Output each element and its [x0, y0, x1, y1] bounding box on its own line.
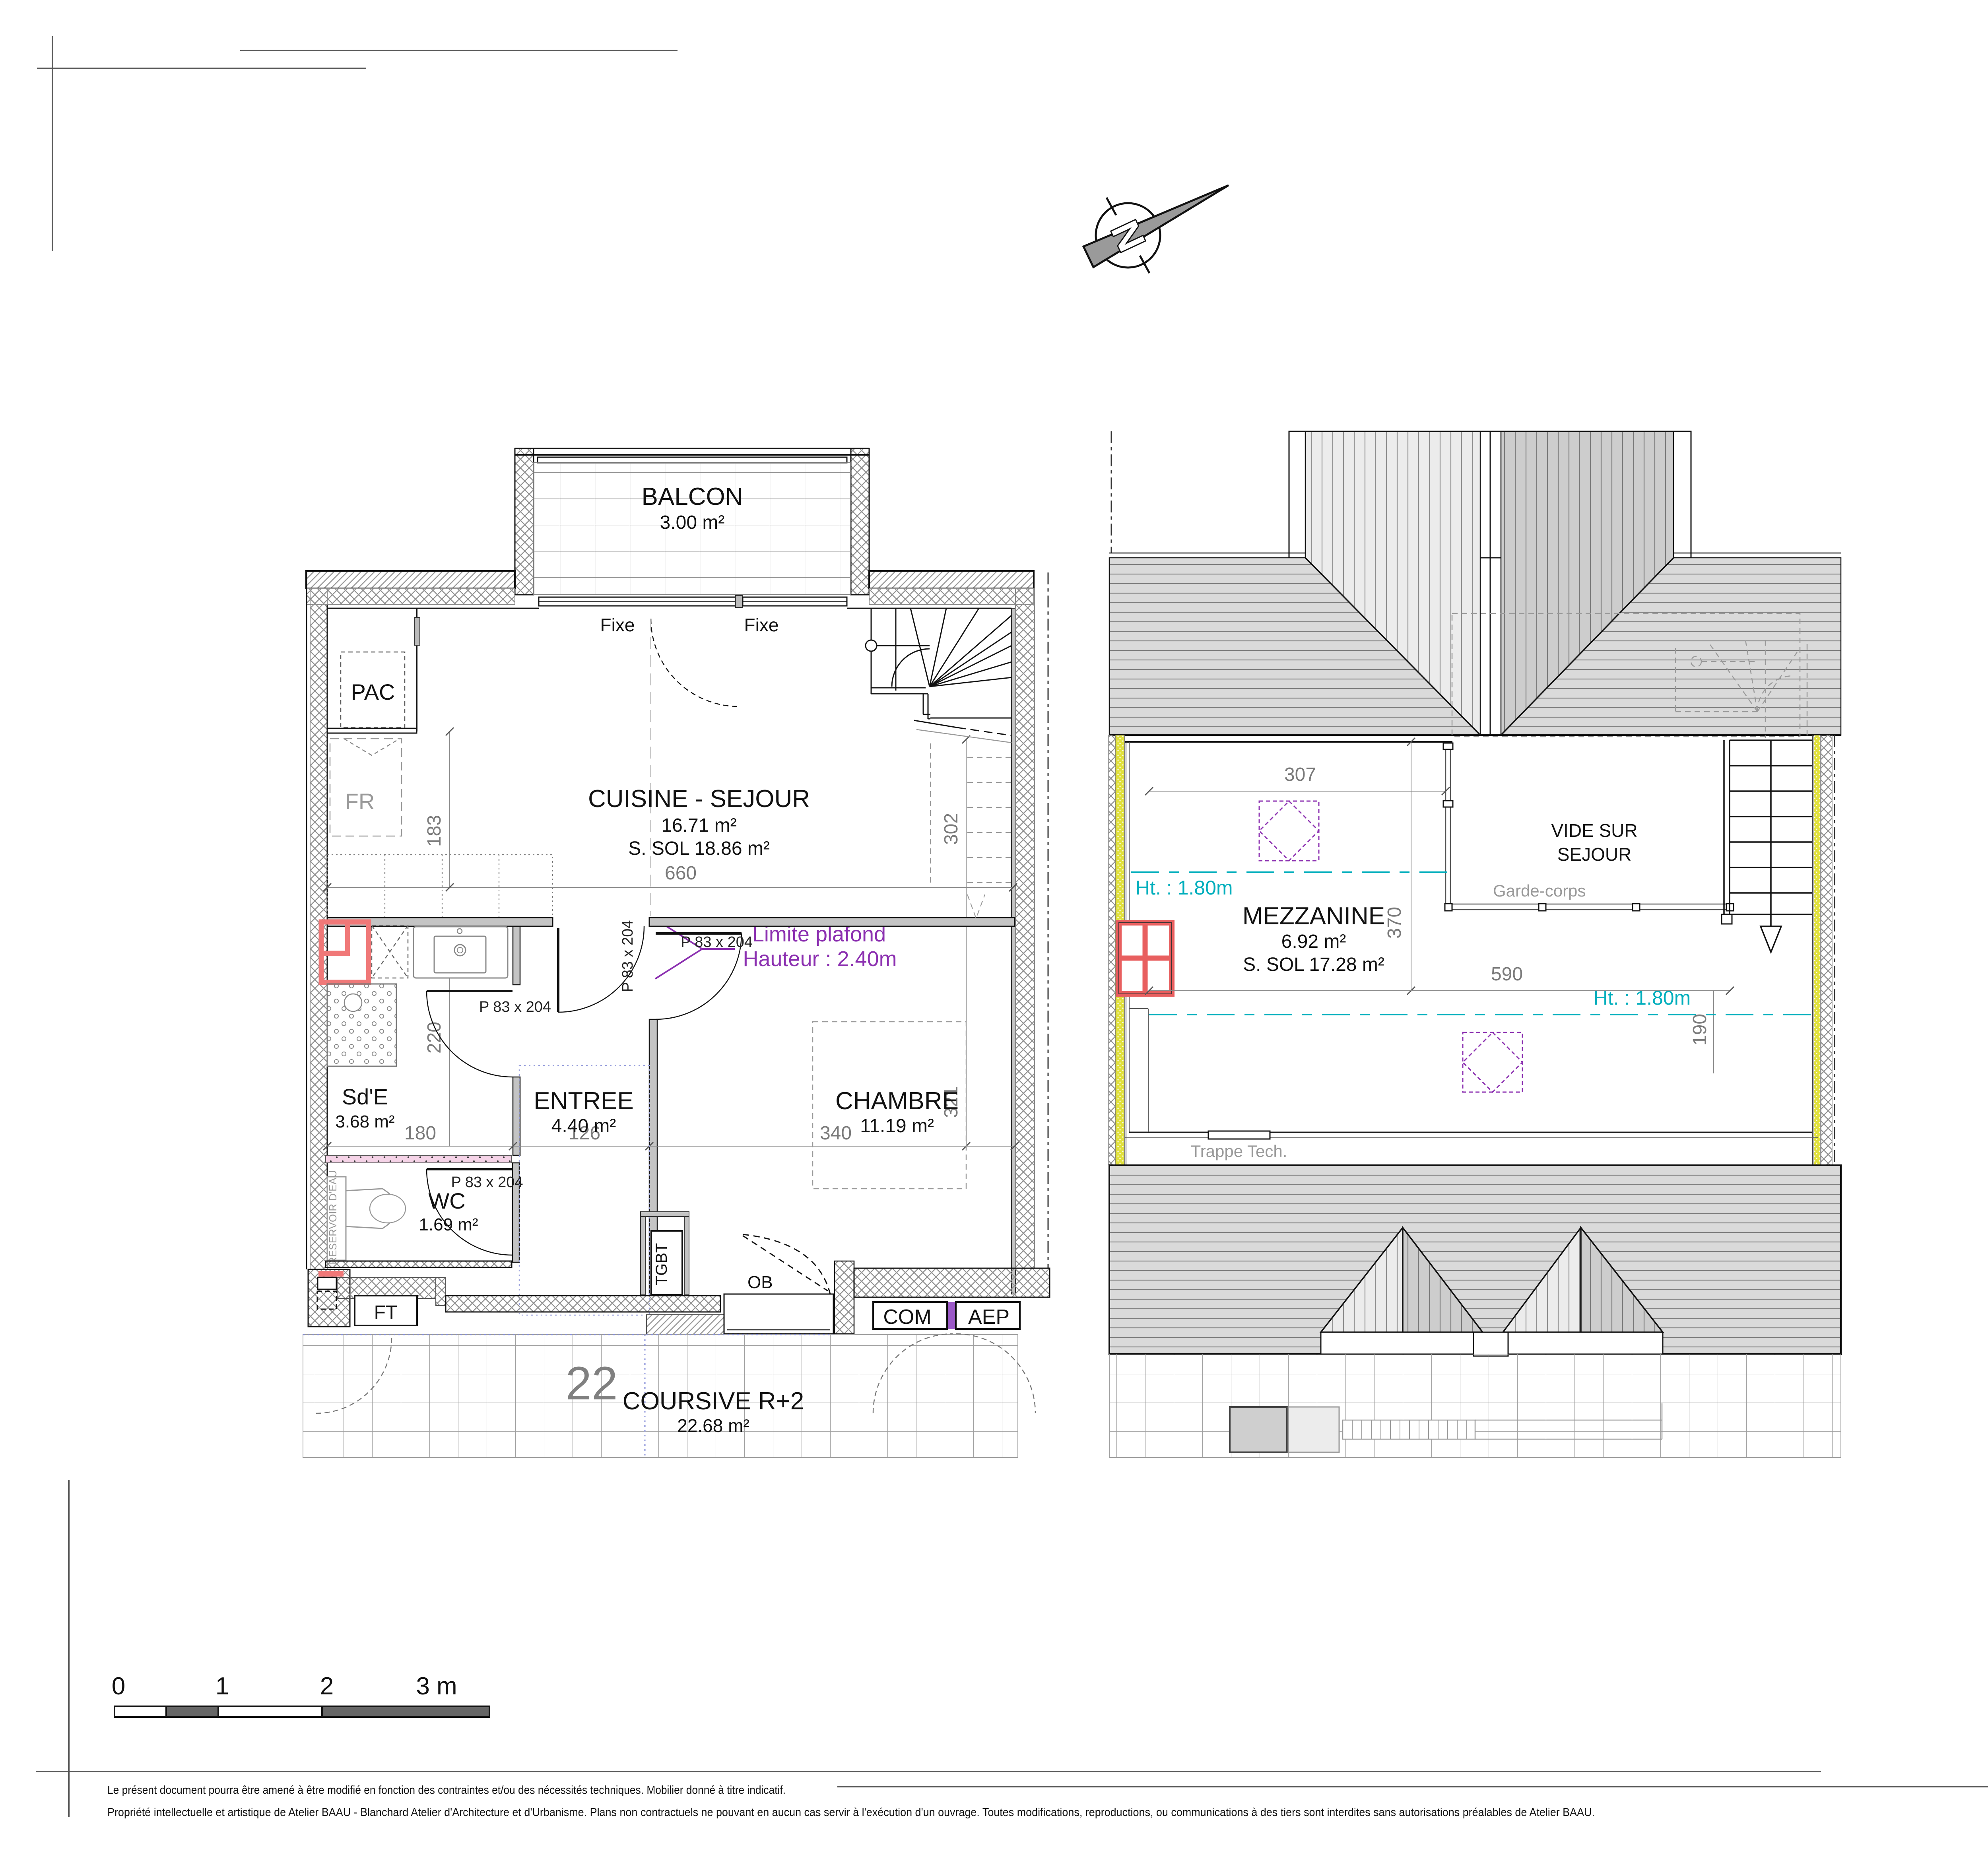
svg-text:FT: FT — [374, 1302, 398, 1323]
svg-text:ENTREE: ENTREE — [534, 1087, 633, 1115]
svg-text:WC: WC — [428, 1188, 465, 1213]
svg-text:22: 22 — [565, 1357, 617, 1410]
svg-text:6.92 m²: 6.92 m² — [1281, 931, 1346, 952]
svg-text:190: 190 — [1689, 1014, 1710, 1046]
svg-text:P 83 x 204: P 83 x 204 — [479, 999, 551, 1015]
svg-text:0: 0 — [112, 1673, 125, 1700]
svg-text:340: 340 — [820, 1123, 852, 1144]
svg-text:VIDE SUR: VIDE SUR — [1551, 820, 1637, 841]
svg-text:3.68 m²: 3.68 m² — [335, 1112, 394, 1131]
svg-text:302: 302 — [941, 813, 962, 845]
svg-text:P 83 x 204: P 83 x 204 — [619, 920, 636, 992]
svg-text:S. SOL 17.28 m²: S. SOL 17.28 m² — [1243, 954, 1384, 975]
svg-text:Hauteur : 2.40m: Hauteur : 2.40m — [743, 947, 897, 971]
svg-text:COURSIVE R+2: COURSIVE R+2 — [623, 1387, 804, 1415]
svg-text:Fixe: Fixe — [744, 615, 779, 635]
svg-text:1.69 m²: 1.69 m² — [419, 1215, 478, 1234]
svg-text:Propriété intellectuelle et ar: Propriété intellectuelle et artistique d… — [107, 1806, 1595, 1819]
svg-text:Ht. : 1.80m: Ht. : 1.80m — [1136, 877, 1233, 899]
svg-text:AEP: AEP — [968, 1306, 1010, 1329]
svg-text:S. SOL 18.86 m²: S. SOL 18.86 m² — [628, 838, 770, 859]
svg-text:Le présent document pourra êtr: Le présent document pourra être amené à … — [107, 1784, 786, 1797]
svg-text:RESERVOIR D'EAU: RESERVOIR D'EAU — [327, 1170, 339, 1264]
svg-text:1: 1 — [215, 1673, 229, 1700]
svg-text:4.40 m²: 4.40 m² — [551, 1116, 616, 1137]
svg-text:PAC: PAC — [351, 679, 395, 704]
svg-text:Garde-corps: Garde-corps — [1493, 881, 1586, 900]
svg-text:11.19 m²: 11.19 m² — [860, 1116, 934, 1137]
svg-text:COM: COM — [883, 1306, 931, 1329]
svg-text:TGBT: TGBT — [653, 1243, 670, 1286]
svg-text:SEJOUR: SEJOUR — [1557, 844, 1632, 865]
svg-text:Fixe: Fixe — [600, 615, 635, 635]
svg-text:Sd'E: Sd'E — [342, 1084, 388, 1109]
svg-text:BALCON: BALCON — [642, 483, 743, 510]
svg-text:CUISINE - SEJOUR: CUISINE - SEJOUR — [588, 785, 810, 813]
svg-text:Ht. : 1.80m: Ht. : 1.80m — [1594, 987, 1691, 1009]
svg-text:22.68 m²: 22.68 m² — [677, 1415, 749, 1436]
svg-text:590: 590 — [1491, 964, 1523, 985]
svg-text:307: 307 — [1284, 764, 1316, 785]
svg-text:2: 2 — [320, 1673, 334, 1700]
svg-text:Trappe Tech.: Trappe Tech. — [1191, 1142, 1287, 1160]
svg-text:3 m: 3 m — [416, 1673, 457, 1700]
svg-text:P 83 x 204: P 83 x 204 — [681, 934, 753, 951]
svg-text:3.00 m²: 3.00 m² — [660, 512, 725, 533]
svg-text:183: 183 — [424, 815, 445, 847]
svg-text:CHAMBRE: CHAMBRE — [835, 1087, 959, 1115]
svg-text:OB: OB — [747, 1273, 773, 1292]
svg-text:FR: FR — [345, 789, 375, 814]
svg-text:660: 660 — [665, 863, 697, 884]
svg-text:16.71 m²: 16.71 m² — [661, 815, 736, 836]
svg-text:180: 180 — [404, 1123, 436, 1144]
svg-text:370: 370 — [1384, 907, 1405, 939]
svg-text:MEZZANINE: MEZZANINE — [1242, 902, 1385, 930]
